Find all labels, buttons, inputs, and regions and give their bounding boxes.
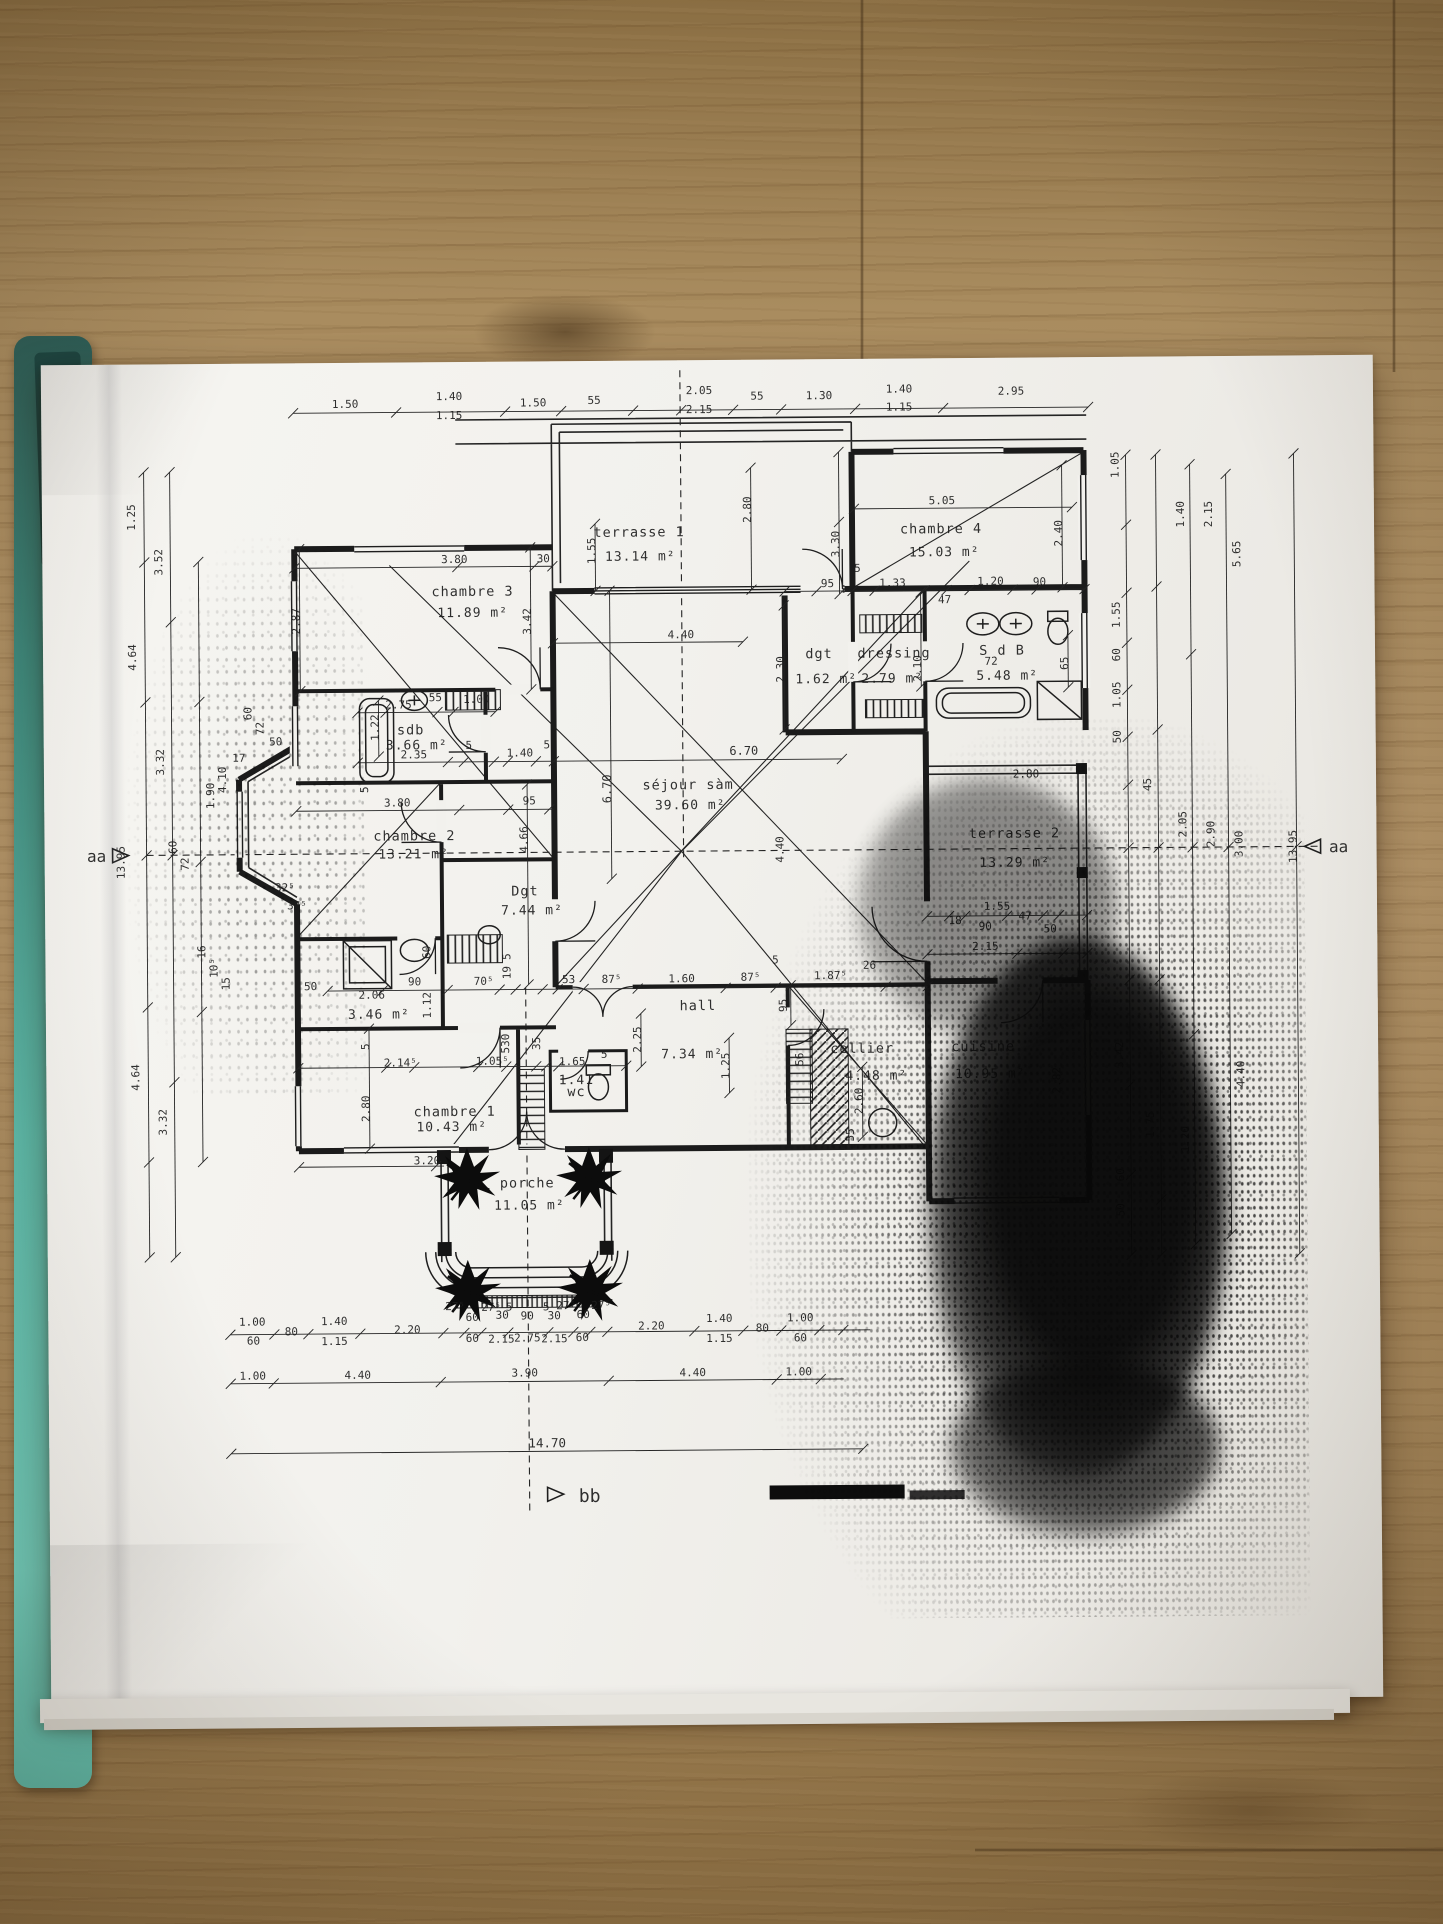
dim-label: 3.30 [829, 531, 842, 558]
toilet [1048, 618, 1068, 644]
dim-label: 27⁵ [591, 1299, 611, 1312]
room-name: séjour sàm [642, 777, 733, 794]
dim-label: 1.15 [321, 1335, 348, 1348]
dim-label: 1.55 [1110, 602, 1123, 629]
section-arrow-bottom [548, 1487, 564, 1501]
dim-label: 1.30 [806, 389, 833, 402]
dim-label: 3.80 [384, 796, 411, 809]
dim-label: 14.70 [528, 1435, 566, 1450]
dim-label: 1.20 [977, 575, 1004, 588]
dim-label: 95 [821, 577, 834, 590]
room-area: 11.89 m² [437, 606, 508, 622]
dim-label: 1.12 [421, 992, 434, 1019]
dim-label: 1.40 [1174, 501, 1187, 528]
wood-plank-seam [860, 0, 864, 368]
dim-label: 70⁵ [474, 975, 494, 988]
dim-label: 4.40 [679, 1366, 706, 1379]
toner-speckle-left [122, 533, 366, 1095]
dim-label: 60 [576, 1331, 589, 1344]
dim-label: 1.15 [886, 400, 913, 413]
room-name: chambre 4 [900, 521, 982, 538]
dim-label: 2.75 [514, 1331, 541, 1344]
dim-label: 5.65 [1230, 541, 1243, 568]
dim-label: 5.05 [929, 494, 956, 507]
dim-label: 1.40 [507, 746, 534, 759]
dim-label: 1.15 [706, 1332, 733, 1345]
dim-label: 2.30 [774, 656, 787, 683]
dim-label: 1.15 [436, 409, 463, 422]
dim-label: 5 [601, 1048, 608, 1061]
wood-plank-seam [1392, 0, 1396, 372]
dim-label: 1.40 [706, 1312, 733, 1325]
dim-label: 1.22 [369, 714, 382, 741]
room-name: chambre 2 [373, 828, 455, 845]
dim-label: 19 [500, 966, 513, 979]
room-name: S d B [979, 643, 1025, 659]
dim-label: 60 [1110, 648, 1123, 661]
dim-label: 530 [499, 1034, 512, 1054]
dim-label: 53 [562, 973, 575, 986]
photo-floor-plan-on-wood-table: aa aa bb 1.501.401.151.50552.052.15551.3… [0, 0, 1443, 1924]
dim-label: 1.40 [321, 1315, 348, 1328]
section-label-bottom: bb [579, 1486, 601, 1507]
dim-label: 60 [577, 1308, 590, 1321]
dim-label: 27⁵ [445, 1300, 465, 1313]
dim-label: 1.00 [239, 1316, 266, 1329]
dim-label: 4.66 [517, 826, 530, 853]
room-area: 2.79 m² [861, 671, 923, 686]
dim-label: 1.50 [520, 396, 547, 409]
dim-label: 4.40 [668, 628, 695, 641]
dim-label: 1.00 [239, 1370, 266, 1383]
room-name: dressing [857, 645, 930, 662]
dim-label: 1.05 [1108, 452, 1121, 479]
dim-label: 5 [465, 739, 472, 752]
dim-label: 1.40 [886, 382, 913, 395]
dim-label: 90 [521, 1309, 534, 1322]
dim-label: 65 [1058, 657, 1071, 670]
dim-label: 90 [408, 975, 421, 988]
dim-label: 1.00 [463, 693, 490, 706]
room-area: 7.34 m² [661, 1047, 723, 1062]
room-name: sdb [397, 722, 425, 738]
dim-label: 2.80 [359, 1095, 372, 1122]
room-area: 11.05 m² [494, 1198, 565, 1214]
dim-label: 30 [537, 552, 550, 565]
dim-label: 90 [1033, 575, 1046, 588]
dim-label: 1.05⁵ [476, 1055, 509, 1068]
dim-label: 2.14⁵ [384, 1056, 417, 1069]
paper-sheet: aa aa bb 1.501.401.151.50552.052.15551.3… [41, 355, 1383, 1707]
dim-label: 55 [587, 394, 600, 407]
dim-label: 4.40 [344, 1369, 371, 1382]
dim-label: 60 [420, 946, 433, 959]
dim-label: 2.75 [385, 698, 412, 711]
room-area: 5.48 m² [976, 668, 1038, 683]
dim-label: 3.80 [441, 553, 468, 566]
dim-label: 2.20 [394, 1323, 421, 1336]
room-area: 7.44 m² [501, 903, 563, 918]
dim-label: 1.50 [332, 398, 359, 411]
toner-speckle [744, 715, 1311, 1619]
dim-label: 5 [543, 738, 550, 751]
dim-label: 2.20 [638, 1319, 665, 1332]
dim-label: 2.15 [541, 1332, 568, 1345]
dim-label: 27⁵ [556, 1299, 576, 1312]
dim-label: 5 [500, 953, 513, 960]
dim-label: 60 [466, 1311, 479, 1324]
dim-label: 2.95 [998, 385, 1025, 398]
dim-label: 5 [506, 1301, 513, 1314]
dim-label: 3.90 [511, 1366, 538, 1379]
room-name: porche [500, 1175, 555, 1191]
dim-label: 2.25 [631, 1026, 644, 1053]
dim-label: 3.32 [157, 1109, 170, 1136]
dim-label: 1.05 [1110, 682, 1123, 709]
dim-label: 1.33 [879, 576, 906, 589]
dim-label: 2.15 [488, 1333, 515, 1346]
dim-label: 55 [750, 390, 763, 403]
room-name: hall [679, 998, 716, 1014]
dim-label: 3.20 [414, 1154, 441, 1167]
dim-label: 1.65 [559, 1055, 586, 1068]
dim-label: 6.70 [600, 774, 614, 803]
dim-label: 1.25 [125, 504, 138, 531]
dim-label: 2.40 [1052, 520, 1065, 547]
dim-label: 1.60 [668, 972, 695, 985]
room-name: dgt [805, 646, 833, 662]
dim-label: 2.15 [686, 403, 713, 416]
dim-label: 87⁵ [602, 973, 622, 986]
dim-label: 60 [247, 1335, 260, 1348]
dim-label: 80 [285, 1325, 298, 1338]
room-area: 39.60 m² [655, 798, 726, 814]
room-area: 13.21 m² [378, 847, 449, 863]
dim-label: 55 [429, 691, 442, 704]
dim-label: 60 [466, 1332, 479, 1345]
dim-label: 35 [530, 1037, 543, 1050]
room-area: 13.14 m² [605, 549, 676, 565]
room-name: chambre 3 [431, 584, 513, 601]
dim-label: 1.40 [436, 390, 463, 403]
dim-label: 2.15 [1202, 501, 1215, 528]
dim-label: 2.80 [741, 496, 754, 523]
dim-label: 1.55 [585, 538, 598, 565]
dim-label: 5 [854, 562, 861, 575]
room-name: Dgt [511, 883, 539, 899]
dim-label: 95 [523, 794, 536, 807]
section-label-left: aa [87, 847, 106, 866]
room-area: 1.62 m² [795, 672, 857, 687]
room-area: 10.43 m² [416, 1120, 487, 1136]
wood-plank-seam [975, 1848, 1443, 1852]
dim-label: 3.42 [521, 608, 534, 635]
room-area: 15.03 m² [909, 545, 980, 561]
dim-label: 2.05 [686, 384, 713, 397]
room-name: terrasse 1 [593, 524, 684, 541]
room-area: 1.41 [559, 1073, 594, 1088]
dim-label: 47 [938, 593, 951, 606]
room-name: chambre 1 [413, 1104, 495, 1121]
section-label-right: aa [1329, 837, 1348, 856]
room-area: 3.66 m² [386, 738, 448, 753]
